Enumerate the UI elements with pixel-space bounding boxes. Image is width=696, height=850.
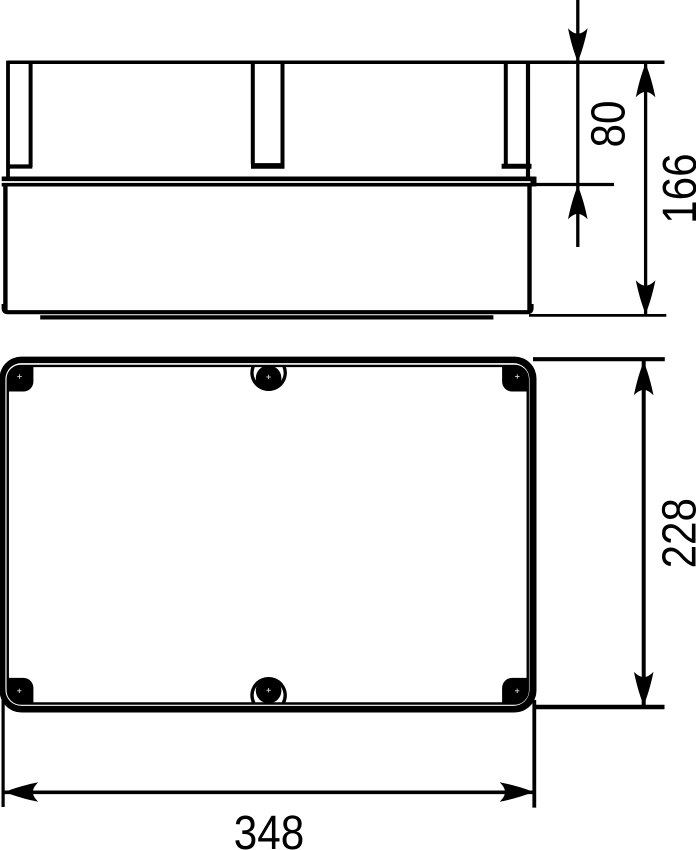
svg-text:166: 166 xyxy=(652,153,696,223)
svg-text:228: 228 xyxy=(652,498,696,568)
svg-text:80: 80 xyxy=(581,101,635,148)
svg-text:348: 348 xyxy=(234,805,304,850)
